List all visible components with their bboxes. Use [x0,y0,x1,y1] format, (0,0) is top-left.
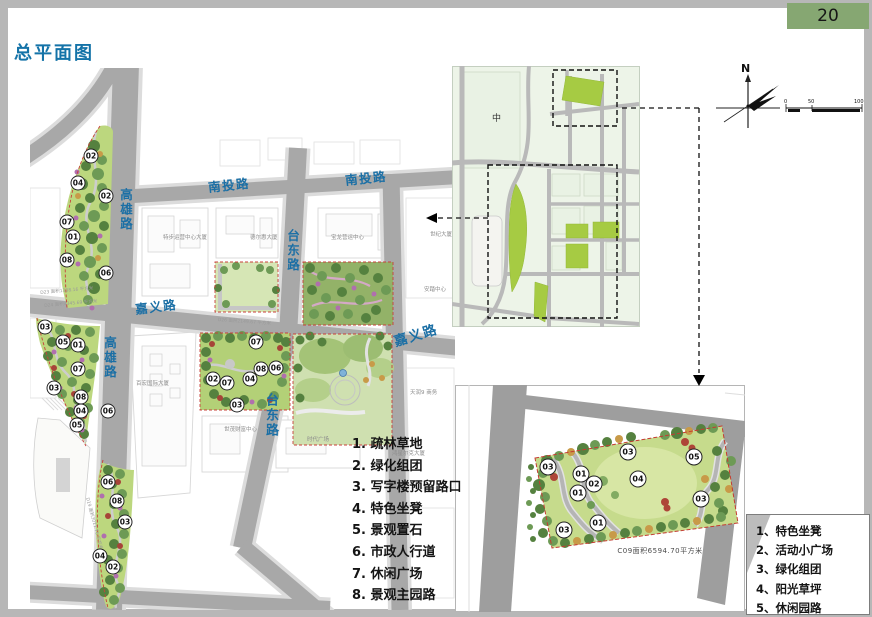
district-label: 中 [492,112,501,124]
building-name-label: 特步运营中心大厦 [163,233,207,241]
area-number-marker: 06 [99,266,114,281]
legend-item: 5. 景观置石 [352,520,462,542]
detail-legend-panel: 1、特色坐凳2、活动小广场3、绿化组团4、阳光草坪5、休闲园路 [746,514,870,615]
legend-item: 4. 特色坐凳 [352,499,462,521]
area-number-marker: 05 [70,418,85,433]
main-legend: 1. 疏林草地2. 绿化组团3. 写字楼预留路口4. 特色坐凳5. 景观置石6.… [352,434,462,607]
detail-number-marker: 03 [556,522,573,539]
building-name-label: 宝龙营运中心 [331,233,364,241]
road-name-label: 高雄路 [116,188,135,232]
area-number-marker: 08 [74,390,89,405]
area-number-marker: 01 [66,230,81,245]
area-number-marker: 03 [230,398,245,413]
page-title: 总平面图 [14,39,94,65]
building-name-label: 天润9 商务 [410,388,437,396]
area-number-marker: 04 [243,372,258,387]
detail-number-marker: 03 [540,459,557,476]
road-name-label: 台东路 [261,393,280,438]
legend-item: 2. 绿化组团 [352,456,462,478]
page-number-badge: 20 [787,3,869,29]
area-number-marker: 08 [60,253,75,268]
detail-number-marker: 03 [693,491,710,508]
legend-item: 3. 写字楼预留路口 [352,477,462,499]
area-number-marker: 07 [220,376,235,391]
detail-number-marker: 01 [590,515,607,532]
legend-item: 3、绿化组团 [756,560,869,579]
document-page: { "page": { "number": "20" }, "header": … [0,0,872,617]
legend-item: 2、活动小广场 [756,541,869,560]
area-number-marker: 05 [56,335,71,350]
area-number-marker: 02 [106,560,121,575]
area-number-marker: 06 [101,404,116,419]
area-number-marker: 03 [118,515,133,530]
building-name-label: 百宏国际大厦 [136,379,169,387]
area-number-marker: 08 [110,494,125,509]
building-name-label: 世茂财富中心 [224,425,257,433]
detail-number-marker: 01 [570,485,587,502]
area-number-marker: 01 [71,338,86,353]
building-name-label: 德尔惠大厦 [250,233,278,241]
building-name-label: 安踏中心 [424,285,446,293]
detail-number-marker: 03 [620,444,637,461]
area-number-marker: 02 [99,189,114,204]
building-name-label: 时代广场 [307,435,329,443]
area-number-marker: 03 [47,381,62,396]
legend-item: 1. 疏林草地 [352,434,462,456]
area-number-marker: 02 [84,149,99,164]
legend-item: 1、特色坐凳 [756,522,869,541]
building-name-label: 世纪大厦 [430,230,452,238]
legend-item: 8. 景观主园路 [352,585,462,607]
legend-item: 6. 市政人行道 [352,542,462,564]
area-number-marker: 07 [71,362,86,377]
detail-number-marker: 05 [686,449,703,466]
area-number-marker: 04 [93,549,108,564]
road-name-label: 高雄路 [100,336,119,380]
detail-legend: 1、特色坐凳2、活动小广场3、绿化组团4、阳光草坪5、休闲园路 [747,515,869,615]
legend-item: 7. 休闲广场 [352,564,462,586]
area-number-marker: 06 [101,475,116,490]
legend-item: 4、阳光草坪 [756,580,869,599]
area-number-marker: 03 [38,320,53,335]
detail-number-marker: 02 [586,476,603,493]
area-number-marker: 04 [71,176,86,191]
area-number-marker: 07 [60,215,75,230]
area-number-marker: 07 [249,335,264,350]
area-number-marker: 04 [74,404,89,419]
overview-key-map: 中 [452,66,640,327]
road-name-label: 台东路 [283,229,302,273]
fountain-feature [340,370,347,377]
detail-area-caption: C09面积6594.70平方米 [585,546,735,556]
area-number-marker: 02 [206,372,221,387]
legend-item: 5、休闲园路 [756,599,869,615]
area-number-marker: 06 [269,361,284,376]
detail-number-marker: 04 [630,471,647,488]
